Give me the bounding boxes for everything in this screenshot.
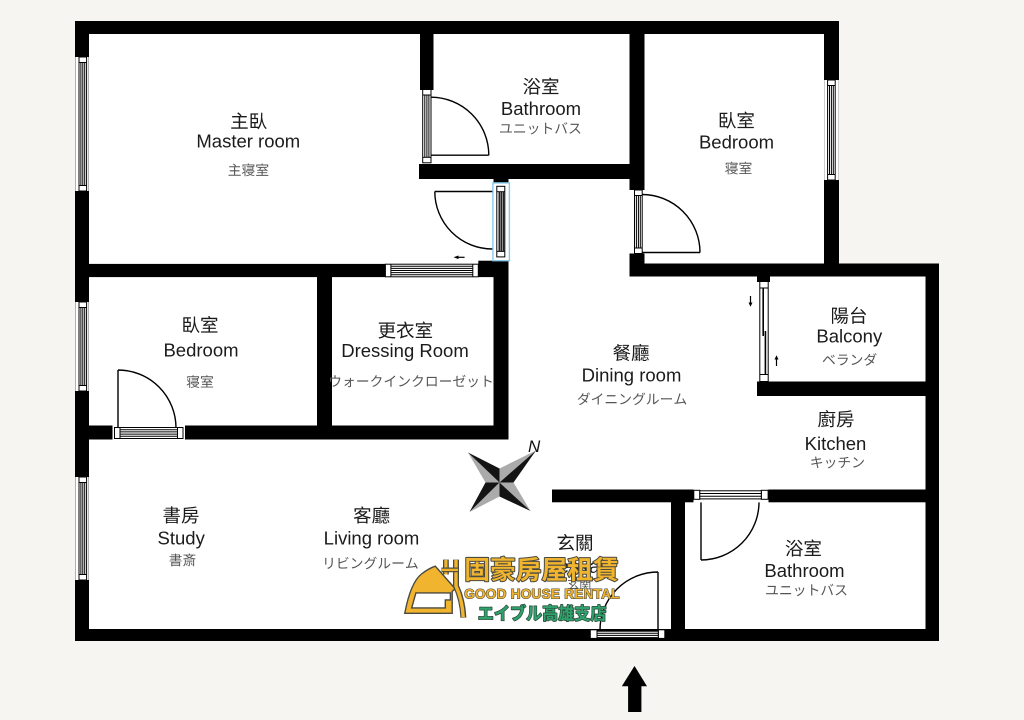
svg-text:Bathroom: Bathroom — [501, 98, 581, 119]
svg-text:Kitchen: Kitchen — [805, 433, 867, 454]
svg-text:N: N — [528, 437, 541, 456]
svg-text:Bathroom: Bathroom — [764, 560, 844, 581]
svg-text:Study: Study — [158, 528, 206, 549]
svg-text:Bedroom: Bedroom — [163, 340, 238, 361]
svg-text:Dressing Room: Dressing Room — [341, 340, 469, 361]
svg-text:Master room: Master room — [196, 131, 300, 152]
svg-text:Dining room: Dining room — [582, 365, 682, 386]
svg-text:Living room: Living room — [324, 528, 420, 549]
svg-text:Balcony: Balcony — [816, 326, 883, 347]
svg-text:Bedroom: Bedroom — [699, 132, 774, 153]
svg-text:GOOD HOUSE RENTAL: GOOD HOUSE RENTAL — [464, 587, 620, 602]
